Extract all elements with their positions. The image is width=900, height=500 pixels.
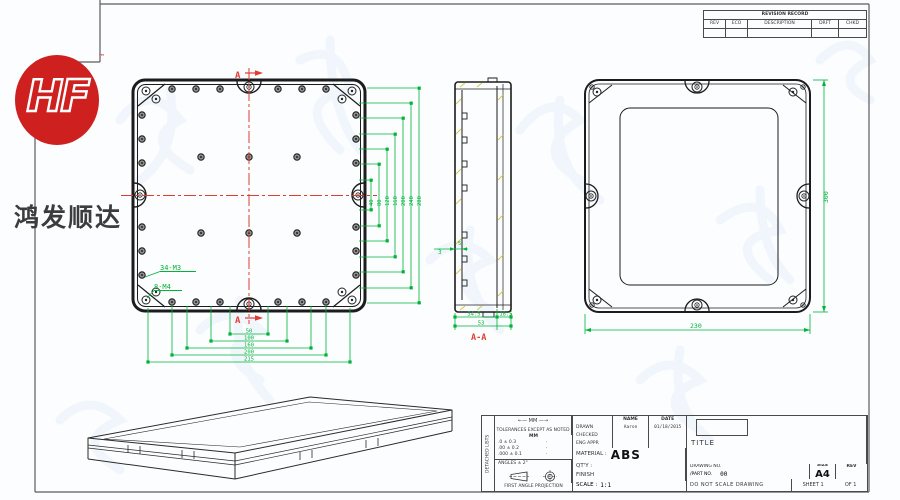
description-col-header: DESCRIPTION bbox=[748, 20, 812, 29]
svg-text:240: 240 bbox=[409, 196, 415, 206]
svg-text:200: 200 bbox=[401, 196, 407, 206]
no-scale-note: DO NOT SCALE DRAWING bbox=[687, 479, 792, 491]
drawing-no-label: DRAWING NO. bbox=[687, 464, 809, 471]
finish-label: FINISH bbox=[573, 471, 686, 481]
back-view: 230 300 bbox=[585, 80, 830, 334]
section-view: 5 3 34.5 18.5 53 bbox=[434, 78, 513, 343]
qty-label: QT'Y : bbox=[573, 462, 686, 471]
tol-row-3: .000 ± 0.1 bbox=[495, 453, 546, 459]
name-header: NAME bbox=[613, 416, 650, 424]
drawing-sheet: A A 34-M3 8-M4 bbox=[0, 0, 900, 500]
svg-text:160: 160 bbox=[244, 343, 254, 349]
top-view: A A 34-M3 8-M4 bbox=[121, 68, 423, 363]
drawn-name: Aaron bbox=[613, 424, 650, 432]
angles-note: ANGLES ± 2° bbox=[495, 460, 572, 469]
svg-text:40: 40 bbox=[369, 199, 375, 206]
svg-text:215: 215 bbox=[244, 357, 254, 363]
sheet-label: SHEET 1 bbox=[803, 483, 824, 488]
drft-cell bbox=[812, 29, 839, 38]
svg-text:50: 50 bbox=[246, 329, 253, 335]
part-no-value: 00 bbox=[720, 472, 727, 478]
target-symbol bbox=[543, 470, 557, 483]
side-strip-label: DETACHED LISTS bbox=[482, 416, 494, 491]
section-label: A-A bbox=[471, 333, 486, 343]
title-block: DETACHED LISTS ←— MM —→ TOLERANCES EXCEP… bbox=[481, 415, 868, 492]
drawn-label: DRAWN bbox=[573, 424, 613, 432]
svg-text:100: 100 bbox=[244, 336, 254, 342]
svg-text:18.5: 18.5 bbox=[499, 311, 512, 317]
scale-value: 1:1 bbox=[600, 483, 611, 489]
part-no-label: /PART NO. bbox=[687, 473, 712, 478]
approval-column: NAME DATE DRAWN Aaron 01/18/2015 CHECKED… bbox=[573, 416, 687, 491]
logo-placeholder-box bbox=[696, 419, 748, 436]
svg-text:160: 160 bbox=[393, 196, 399, 206]
title-column: TITLE DRAWING NO. /PART NO. 00 SIZE A4 R… bbox=[687, 416, 867, 491]
title-label: TITLE bbox=[687, 437, 867, 464]
svg-text:53: 53 bbox=[478, 320, 485, 326]
svg-text:A: A bbox=[235, 71, 241, 81]
revision-table: REVISION RECORD REV ECO DESCRIPTION DRFT… bbox=[703, 10, 867, 38]
rev-cell bbox=[704, 29, 726, 38]
checked-label: CHECKED bbox=[573, 432, 613, 440]
company-name: 鸿发顺达 bbox=[14, 198, 122, 234]
cone-symbol bbox=[509, 471, 535, 482]
svg-text:280: 280 bbox=[417, 196, 423, 206]
section-small-dims: 5 3 bbox=[434, 241, 468, 256]
svg-text:3: 3 bbox=[438, 249, 442, 256]
size-value: A4 bbox=[815, 469, 830, 480]
svg-text:A: A bbox=[235, 316, 241, 326]
hatch-marks bbox=[456, 83, 503, 310]
date-header: DATE bbox=[649, 416, 686, 424]
projection-label: FIRST ANGLE PROJECTION bbox=[495, 483, 572, 491]
revision-table-title: REVISION RECORD bbox=[704, 11, 866, 20]
tolerance-column: ←— MM —→ TOLERANCES EXCEPT AS NOTED MM .… bbox=[495, 416, 573, 491]
svg-text:5: 5 bbox=[458, 241, 461, 247]
trademark-symbol: ™ bbox=[98, 53, 105, 61]
projection-symbols bbox=[495, 469, 572, 483]
company-logo: HF ™ bbox=[15, 55, 99, 145]
svg-text:34.5: 34.5 bbox=[467, 311, 480, 317]
svg-text:230: 230 bbox=[690, 322, 702, 330]
svg-text:120: 120 bbox=[385, 196, 391, 206]
chkd-col-header: CHKD bbox=[839, 20, 866, 29]
description-cell bbox=[748, 29, 812, 38]
side-strip-cell: DETACHED LISTS bbox=[482, 416, 495, 491]
drft-col-header: DRFT bbox=[812, 20, 839, 29]
svg-text:8-M4: 8-M4 bbox=[154, 283, 171, 291]
svg-text:300: 300 bbox=[822, 191, 830, 203]
eng-appr-label: ENG APPR bbox=[573, 440, 613, 448]
material-value: ABS bbox=[611, 448, 641, 462]
svg-text:34-M3: 34-M3 bbox=[160, 264, 181, 272]
rev-col-header: REV bbox=[704, 20, 726, 29]
material-label: MATERIAL : bbox=[573, 452, 607, 458]
tol-mark-3: · bbox=[546, 453, 547, 459]
logo-letters: HF bbox=[15, 73, 99, 121]
tolerance-table: MM .0 ± 0.3· .00 ± 0.2· .000 ± 0.1· bbox=[495, 435, 572, 460]
rev-label: REV bbox=[836, 464, 867, 479]
scale-label: SCALE : bbox=[573, 483, 597, 489]
svg-text:200: 200 bbox=[244, 350, 254, 356]
svg-text:80: 80 bbox=[377, 199, 383, 206]
units-arrow: ←— MM —→ bbox=[495, 416, 572, 427]
chkd-cell bbox=[839, 29, 866, 38]
eco-col-header: ECO bbox=[726, 20, 748, 29]
thread-callouts: 34-M3 8-M4 bbox=[145, 264, 196, 298]
drawn-date: 01/18/2015 bbox=[649, 424, 686, 432]
isometric-view bbox=[88, 397, 452, 479]
of-label: OF 1 bbox=[845, 483, 857, 488]
eco-cell bbox=[726, 29, 748, 38]
